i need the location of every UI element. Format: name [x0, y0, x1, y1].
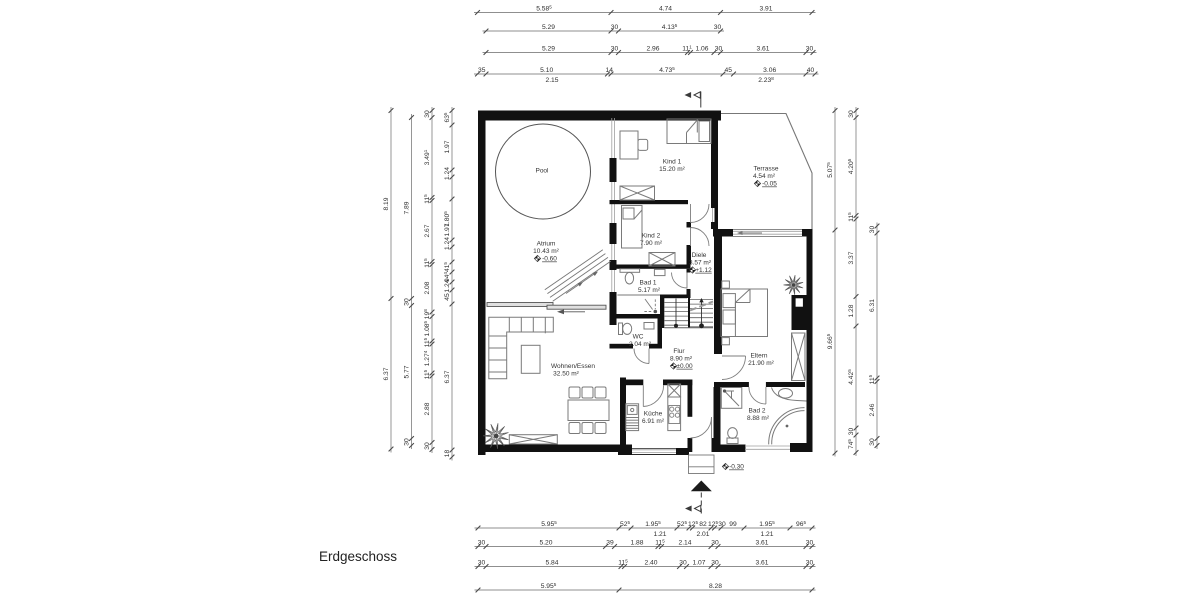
- svg-text:5.29: 5.29: [542, 24, 555, 31]
- svg-text:3.61: 3.61: [756, 45, 769, 52]
- svg-text:30: 30: [848, 110, 855, 118]
- svg-text:30: 30: [679, 559, 687, 566]
- svg-text:Kind 2: Kind 2: [642, 233, 661, 240]
- svg-text:7.89: 7.89: [403, 201, 410, 214]
- svg-text:2.67: 2.67: [424, 224, 431, 237]
- svg-text:8.90 m²: 8.90 m²: [670, 355, 693, 362]
- svg-text:3.61: 3.61: [755, 559, 768, 566]
- svg-text:3.37: 3.37: [848, 251, 855, 264]
- svg-text:30: 30: [403, 438, 410, 446]
- svg-text:Pool: Pool: [535, 168, 549, 175]
- svg-text:10.43 m²: 10.43 m²: [533, 248, 559, 255]
- svg-text:6.37: 6.37: [383, 367, 390, 380]
- svg-text:5.84: 5.84: [545, 559, 558, 566]
- svg-text:1.97: 1.97: [444, 223, 451, 236]
- svg-text:8.19: 8.19: [383, 197, 390, 210]
- svg-text:Terrasse: Terrasse: [754, 166, 779, 173]
- svg-text:30: 30: [424, 110, 431, 118]
- svg-text:45: 45: [444, 293, 451, 301]
- svg-text:5.10: 5.10: [540, 67, 553, 74]
- svg-text:2.08: 2.08: [424, 281, 431, 294]
- svg-text:30: 30: [806, 559, 814, 566]
- svg-text:8.28: 8.28: [709, 583, 722, 590]
- svg-text:Eltern: Eltern: [751, 353, 768, 360]
- svg-text:Erdgeschoss: Erdgeschoss: [319, 549, 397, 564]
- svg-text:±0.00: ±0.00: [676, 363, 693, 370]
- svg-text:Atrium: Atrium: [537, 241, 556, 248]
- svg-text:2.40: 2.40: [644, 559, 657, 566]
- svg-text:1.28: 1.28: [848, 304, 855, 317]
- svg-text:32.50 m²: 32.50 m²: [553, 370, 579, 377]
- svg-text:30: 30: [715, 45, 723, 52]
- svg-text:21.90 m²: 21.90 m²: [748, 360, 774, 367]
- svg-text:1.06: 1.06: [695, 45, 708, 52]
- svg-text:2.46: 2.46: [869, 403, 876, 416]
- svg-text:1.07: 1.07: [692, 559, 705, 566]
- svg-text:30: 30: [611, 24, 619, 31]
- svg-text:6.31: 6.31: [869, 299, 876, 312]
- svg-text:39: 39: [606, 539, 614, 546]
- svg-text:5.29: 5.29: [542, 45, 555, 52]
- svg-text:30: 30: [424, 442, 431, 450]
- svg-text:30: 30: [478, 539, 486, 546]
- svg-text:5.17 m²: 5.17 m²: [638, 287, 661, 294]
- svg-text:5.20: 5.20: [539, 539, 552, 546]
- svg-text:3.57 m²: 3.57 m²: [689, 259, 712, 266]
- svg-text:1.24: 1.24: [444, 237, 451, 250]
- svg-text:18: 18: [444, 450, 451, 458]
- svg-text:6.37: 6.37: [444, 370, 451, 383]
- svg-text:15.20 m²: 15.20 m²: [659, 166, 685, 173]
- svg-text:30: 30: [848, 428, 855, 436]
- svg-text:Bad 1: Bad 1: [640, 280, 657, 287]
- svg-text:+1.12: +1.12: [695, 267, 712, 274]
- svg-text:2.88: 2.88: [424, 402, 431, 415]
- svg-text:99: 99: [729, 521, 737, 528]
- svg-text:-0.05: -0.05: [762, 181, 777, 188]
- svg-text:WC: WC: [633, 334, 644, 341]
- svg-text:30: 30: [869, 226, 876, 234]
- svg-text:30: 30: [869, 438, 876, 446]
- svg-text:1.97: 1.97: [444, 140, 451, 153]
- svg-text:5.77: 5.77: [403, 365, 410, 378]
- svg-text:Diele: Diele: [692, 252, 707, 259]
- svg-text:82: 82: [699, 521, 707, 528]
- svg-text:2.15: 2.15: [545, 77, 558, 84]
- svg-text:35: 35: [478, 67, 486, 74]
- svg-text:30: 30: [711, 559, 719, 566]
- svg-text:30: 30: [478, 559, 486, 566]
- svg-text:1.24: 1.24: [444, 167, 451, 180]
- svg-text:2.04 m²: 2.04 m²: [629, 341, 652, 348]
- svg-text:2.14: 2.14: [678, 539, 691, 546]
- svg-text:1.21: 1.21: [760, 531, 773, 538]
- svg-text:30: 30: [611, 45, 619, 52]
- svg-text:Flur: Flur: [673, 348, 685, 355]
- svg-text:-0.30: -0.30: [729, 464, 744, 471]
- svg-text:8.88 m²: 8.88 m²: [747, 415, 770, 422]
- svg-text:30: 30: [718, 521, 726, 528]
- svg-text:30: 30: [403, 298, 410, 306]
- svg-text:Kind 1: Kind 1: [663, 159, 682, 166]
- svg-text:3.61: 3.61: [755, 539, 768, 546]
- svg-text:30: 30: [806, 45, 814, 52]
- svg-text:30: 30: [714, 24, 722, 31]
- svg-text:45: 45: [724, 67, 732, 74]
- svg-text:1.88: 1.88: [630, 539, 643, 546]
- svg-text:-0.60: -0.60: [542, 256, 557, 263]
- svg-text:Bad 2: Bad 2: [749, 408, 766, 415]
- svg-text:4.54 m²: 4.54 m²: [753, 173, 776, 180]
- svg-text:7.90 m²: 7.90 m²: [640, 240, 663, 247]
- svg-text:4.74: 4.74: [659, 5, 672, 12]
- svg-text:Wohnen/Essen: Wohnen/Essen: [551, 363, 595, 370]
- svg-text:2.96: 2.96: [646, 45, 659, 52]
- svg-text:30: 30: [711, 539, 719, 546]
- svg-text:Küche: Küche: [644, 411, 663, 418]
- svg-text:2.01: 2.01: [696, 531, 709, 538]
- svg-text:40: 40: [807, 67, 815, 74]
- svg-text:14: 14: [605, 67, 613, 74]
- svg-text:1.21: 1.21: [653, 531, 666, 538]
- svg-text:1.24: 1.24: [444, 279, 451, 292]
- svg-text:3.06: 3.06: [763, 67, 776, 74]
- svg-text:3.91: 3.91: [759, 5, 772, 12]
- svg-text:6.91 m²: 6.91 m²: [642, 418, 665, 425]
- svg-text:30: 30: [806, 539, 814, 546]
